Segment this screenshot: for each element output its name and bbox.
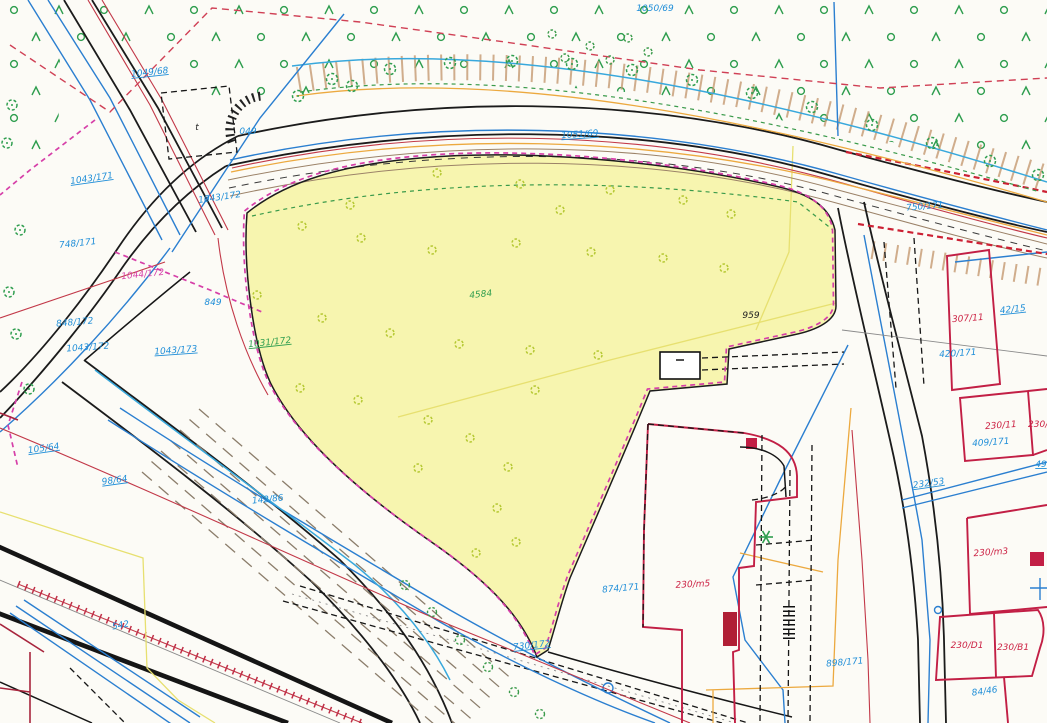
map-canvas: 1050/691049/681043/1711043/1721051/69748…: [0, 0, 1047, 723]
parcel-label: 230/1: [1028, 420, 1047, 430]
building-footprint: [1030, 552, 1044, 566]
parcel-label: 230/B1: [997, 643, 1029, 653]
parcel-label: 230/D1: [951, 641, 984, 651]
parcel-label: 49: [1035, 460, 1047, 470]
parcel-label: t: [195, 123, 199, 133]
kiosk-structure: [660, 352, 700, 379]
building-footprint: [723, 612, 737, 646]
parcel-label: 230/m5: [675, 579, 710, 591]
parcel-label: 1050/69: [636, 4, 674, 14]
parcel-label: 049: [239, 127, 256, 137]
scanned-cadastral-map: 1050/691049/681043/1711043/1721051/69748…: [0, 0, 1047, 723]
parcel-label: 959: [742, 311, 759, 321]
parcel-label: 849: [204, 298, 221, 308]
